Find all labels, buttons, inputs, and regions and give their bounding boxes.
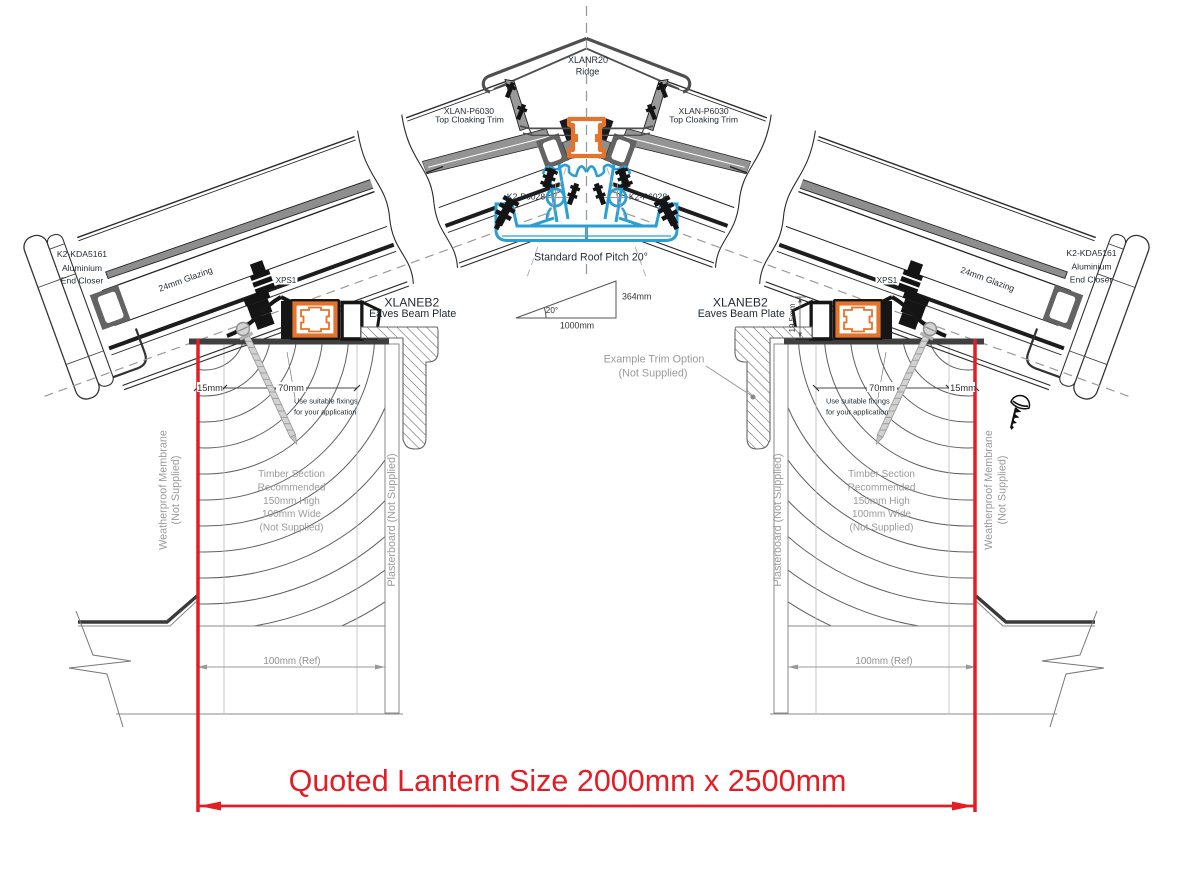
svg-text:1000mm: 1000mm	[560, 321, 594, 331]
svg-text:70mm: 70mm	[869, 383, 895, 393]
svg-text:100mm Wide: 100mm Wide	[852, 509, 911, 520]
svg-text:Weatherproof Membrane: Weatherproof Membrane	[983, 430, 995, 550]
svg-text:364mm: 364mm	[622, 292, 651, 302]
svg-text:Eaves Beam Plate: Eaves Beam Plate	[698, 308, 785, 320]
svg-text:150mm High: 150mm High	[853, 496, 910, 507]
svg-text:19.5mm: 19.5mm	[788, 303, 797, 332]
svg-text:K2-KDA5161: K2-KDA5161	[1066, 248, 1116, 258]
svg-text:(Not Supplied): (Not Supplied)	[618, 368, 687, 380]
svg-text:Quoted Lantern Size 2000mm x 2: Quoted Lantern Size 2000mm x 2500mm	[289, 764, 847, 798]
svg-text:100mm Wide: 100mm Wide	[262, 509, 321, 520]
svg-text:15mm: 15mm	[950, 383, 976, 393]
svg-text:Use suitable fixings: Use suitable fixings	[826, 397, 890, 406]
svg-text:K2-KDA5161: K2-KDA5161	[57, 249, 107, 259]
svg-text:Plasterboard (Not Supplied): Plasterboard (Not Supplied)	[772, 453, 784, 586]
svg-text:15mm: 15mm	[197, 383, 223, 393]
svg-text:XPS1: XPS1	[276, 276, 297, 285]
svg-text:Top Cloaking Trim: Top Cloaking Trim	[669, 114, 738, 124]
svg-text:100mm (Ref): 100mm (Ref)	[855, 656, 912, 667]
svg-text:End Closer: End Closer	[1070, 275, 1113, 285]
svg-text:(Not Supplied): (Not Supplied)	[170, 455, 182, 524]
svg-text:20°: 20°	[546, 306, 558, 315]
svg-text:150mm High: 150mm High	[263, 496, 320, 507]
svg-text:K2-P6028: K2-P6028	[507, 192, 545, 202]
svg-text:Eaves Beam Plate: Eaves Beam Plate	[369, 308, 456, 320]
svg-text:Example Trim Option: Example Trim Option	[604, 354, 705, 366]
svg-text:Top Cloaking Trim: Top Cloaking Trim	[435, 114, 504, 124]
svg-text:Recommended: Recommended	[848, 482, 916, 493]
svg-text:Recommended: Recommended	[258, 482, 326, 493]
svg-text:Timber Section: Timber Section	[258, 469, 325, 480]
svg-text:for your application: for your application	[826, 408, 888, 417]
svg-text:(Not Supplied): (Not Supplied)	[260, 523, 324, 534]
svg-text:Aluminium: Aluminium	[62, 263, 102, 273]
svg-text:(Not Supplied): (Not Supplied)	[997, 455, 1009, 524]
svg-text:K2-P6028: K2-P6028	[629, 192, 667, 202]
svg-text:End Closer: End Closer	[61, 276, 104, 286]
svg-text:Timber Section: Timber Section	[848, 469, 915, 480]
svg-text:XLANR20: XLANR20	[568, 55, 608, 65]
svg-text:for your application: for your application	[294, 408, 356, 417]
svg-text:Use suitable fixings: Use suitable fixings	[294, 397, 358, 406]
svg-text:XPS1: XPS1	[877, 276, 898, 285]
svg-text:Plasterboard (Not Supplied): Plasterboard (Not Supplied)	[386, 453, 398, 586]
svg-text:Weatherproof Membrane: Weatherproof Membrane	[158, 430, 170, 550]
svg-text:100mm (Ref): 100mm (Ref)	[263, 656, 320, 667]
svg-text:Standard Roof Pitch 20°: Standard Roof Pitch 20°	[534, 252, 648, 264]
svg-text:(Not Supplied): (Not Supplied)	[850, 523, 914, 534]
svg-text:Aluminium: Aluminium	[1071, 262, 1111, 272]
svg-text:Ridge: Ridge	[576, 67, 600, 77]
svg-text:70mm: 70mm	[278, 383, 304, 393]
